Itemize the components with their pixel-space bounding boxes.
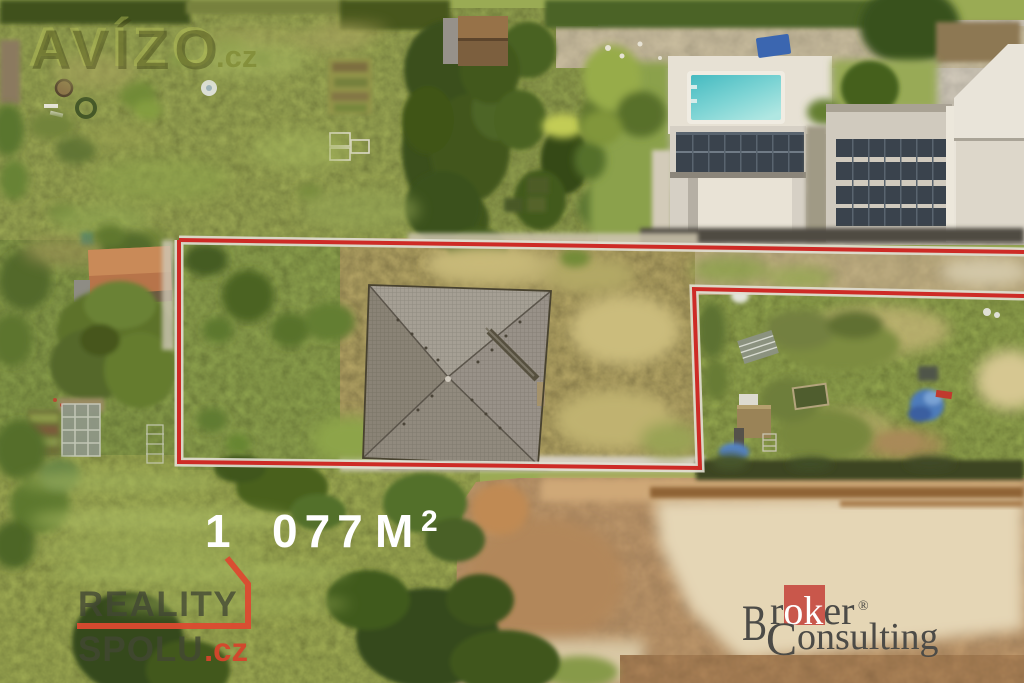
- svg-text:.cz: .cz: [204, 631, 248, 668]
- svg-text:1: 1: [205, 505, 231, 557]
- svg-text:077: 077: [272, 505, 370, 557]
- svg-text:AVÍZO: AVÍZO: [31, 18, 223, 81]
- svg-text:B: B: [742, 596, 767, 652]
- svg-text:®: ®: [858, 599, 869, 614]
- svg-text:.cz: .cz: [216, 39, 257, 74]
- svg-text:C: C: [766, 613, 797, 666]
- svg-text:M: M: [375, 505, 413, 557]
- svg-text:onsulting: onsulting: [797, 616, 938, 658]
- svg-text:SPOLU: SPOLU: [78, 630, 204, 669]
- svg-text:2: 2: [421, 505, 438, 538]
- svg-text:REALITY: REALITY: [78, 585, 238, 624]
